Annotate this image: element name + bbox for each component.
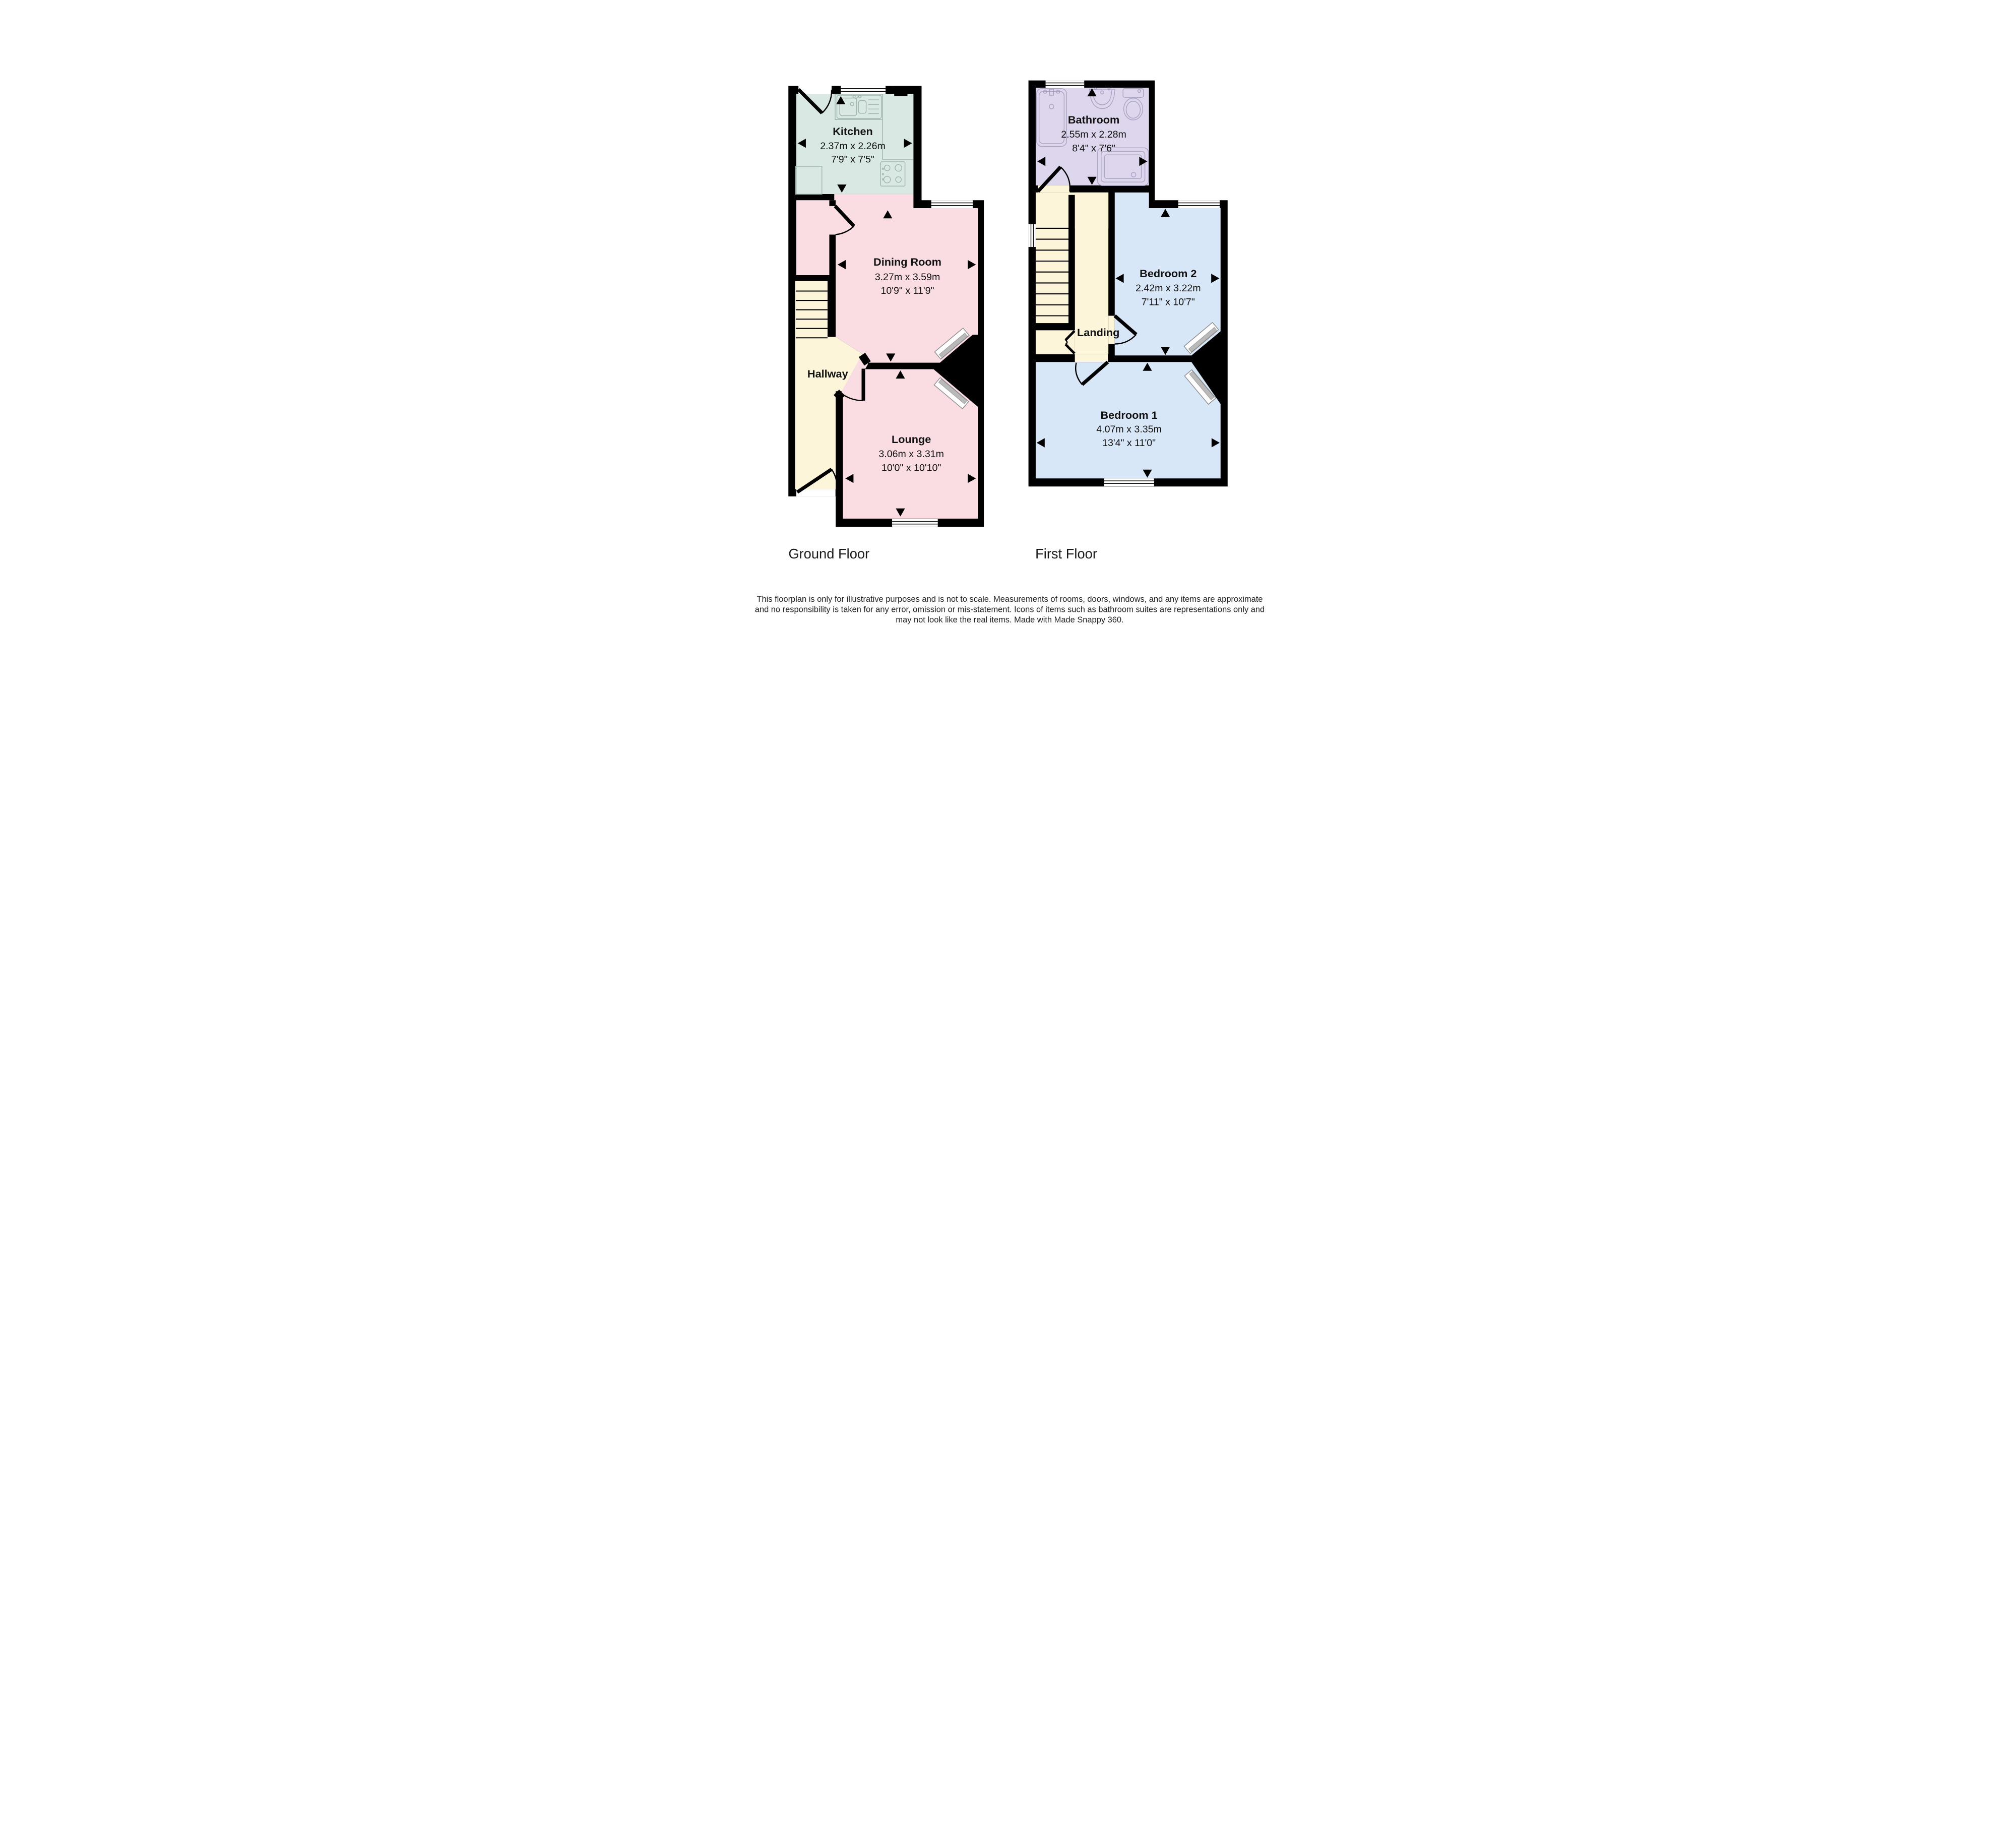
- dining-room-dimensions-imperial: 10'9" x 11'9": [880, 285, 934, 296]
- disclaimer-line-2: and no responsibility is taken for any e…: [755, 605, 1265, 614]
- hallway-label: Hallway: [807, 367, 848, 380]
- disclaimer-line-1: This floorplan is only for illustrative …: [757, 595, 1263, 604]
- stair-balustrade-wall: [1068, 195, 1075, 323]
- lounge-dimensions-metric: 3.06m x 3.31m: [878, 449, 944, 460]
- stairs-window: [1029, 224, 1036, 247]
- bedroom-1-dimensions-imperial: 13'4" x 11'0": [1102, 437, 1156, 449]
- dining-room-dimensions-metric: 3.27m x 3.59m: [875, 272, 940, 283]
- bedroom-1-dimensions-metric: 4.07m x 3.35m: [1096, 424, 1162, 435]
- floorplan-page: Kitchen 2.37m x 2.26m 7'9" x 7'5" Dining…: [655, 0, 1361, 638]
- bathroom-dimensions-imperial: 8'4" x 7'6": [1072, 143, 1115, 154]
- disclaimer-line-3: may not look like the real items. Made w…: [896, 615, 1123, 624]
- kitchen-dimensions-metric: 2.37m x 2.26m: [820, 141, 886, 152]
- bedroom-2-label: Bedroom 2: [1140, 267, 1196, 280]
- first-floor-plan: Bathroom 2.55m x 2.28m 8'4" x 7'6" Bedro…: [1029, 81, 1228, 561]
- landing-label: Landing: [1077, 326, 1119, 339]
- stair-bottom-wall: [1036, 323, 1075, 330]
- door-jamb: [862, 355, 867, 363]
- bedroom-1-window: [1104, 478, 1154, 486]
- bedroom-2-dimensions-metric: 2.42m x 3.22m: [1136, 283, 1201, 294]
- bathroom-window: [1046, 81, 1085, 88]
- stairwell-area: [1036, 228, 1068, 323]
- bathroom-dimensions-metric: 2.55m x 2.28m: [1061, 129, 1126, 140]
- disclaimer: This floorplan is only for illustrative …: [755, 595, 1265, 624]
- lounge-window: [892, 519, 938, 527]
- kitchen-label: Kitchen: [833, 125, 873, 138]
- first-floor-title: First Floor: [1035, 546, 1097, 561]
- lounge-dimensions-imperial: 10'0" x 10'10": [881, 463, 941, 474]
- door-jamb: [836, 392, 842, 398]
- floorplan-canvas: Kitchen 2.37m x 2.26m 7'9" x 7'5" Dining…: [655, 0, 1361, 638]
- bedroom-2-dimensions-imperial: 7'11" x 10'7": [1142, 297, 1195, 308]
- lounge-label: Lounge: [892, 433, 931, 446]
- cupboard-area: [1036, 330, 1068, 354]
- dining-inner-wall: [829, 235, 836, 276]
- kitchen-wall-notch: [894, 86, 907, 96]
- dining-window: [931, 200, 973, 208]
- bedroom-1-label: Bedroom 1: [1100, 409, 1157, 421]
- ground-floor-plan: Kitchen 2.37m x 2.26m 7'9" x 7'5" Dining…: [788, 86, 984, 561]
- dining-room-label: Dining Room: [873, 256, 941, 268]
- bedroom-1-door-opening: [1075, 354, 1108, 362]
- ground-floor-title: Ground Floor: [788, 546, 869, 561]
- kitchen-window: [841, 86, 886, 94]
- kitchen-dimensions-imperial: 7'9" x 7'5": [831, 154, 874, 165]
- bathroom-label: Bathroom: [1068, 113, 1119, 126]
- bedroom-2-window: [1178, 200, 1220, 208]
- dining-door-jamb-top: [829, 200, 836, 206]
